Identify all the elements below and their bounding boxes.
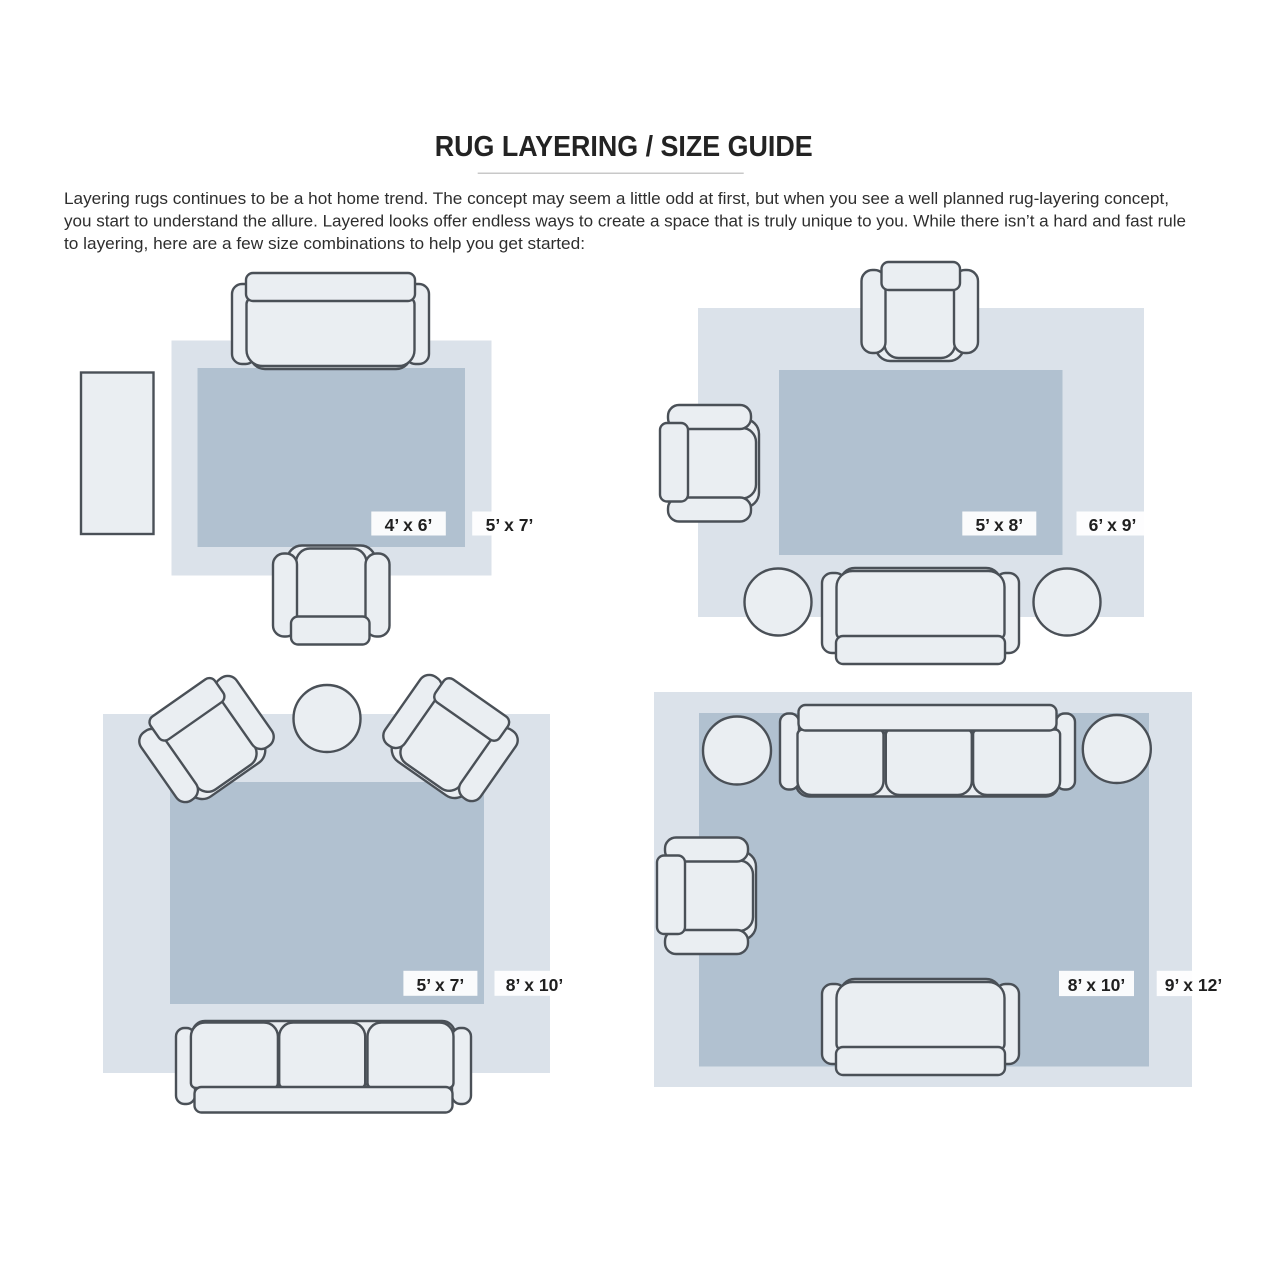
svg-text:to layering, here are a few si: to layering, here are a few size combina… <box>64 234 585 253</box>
svg-text:5’ x 7’: 5’ x 7’ <box>417 975 465 995</box>
svg-text:5’ x 8’: 5’ x 8’ <box>975 515 1023 535</box>
svg-text:5’ x 7’: 5’ x 7’ <box>486 515 534 535</box>
svg-text:8’ x 10’: 8’ x 10’ <box>506 975 563 995</box>
svg-text:9’ x 12’: 9’ x 12’ <box>1165 975 1222 995</box>
svg-text:8’ x 10’: 8’ x 10’ <box>1068 975 1125 995</box>
svg-text:RUG LAYERING / SIZE GUIDE: RUG LAYERING / SIZE GUIDE <box>435 131 813 163</box>
svg-text:4’ x 6’: 4’ x 6’ <box>385 515 433 535</box>
svg-text:6’ x 9’: 6’ x 9’ <box>1089 515 1137 535</box>
svg-text:Layering rugs continues to be: Layering rugs continues to be a hot home… <box>64 189 1169 208</box>
svg-text:you start to understand the al: you start to understand the allure. Laye… <box>64 212 1186 231</box>
